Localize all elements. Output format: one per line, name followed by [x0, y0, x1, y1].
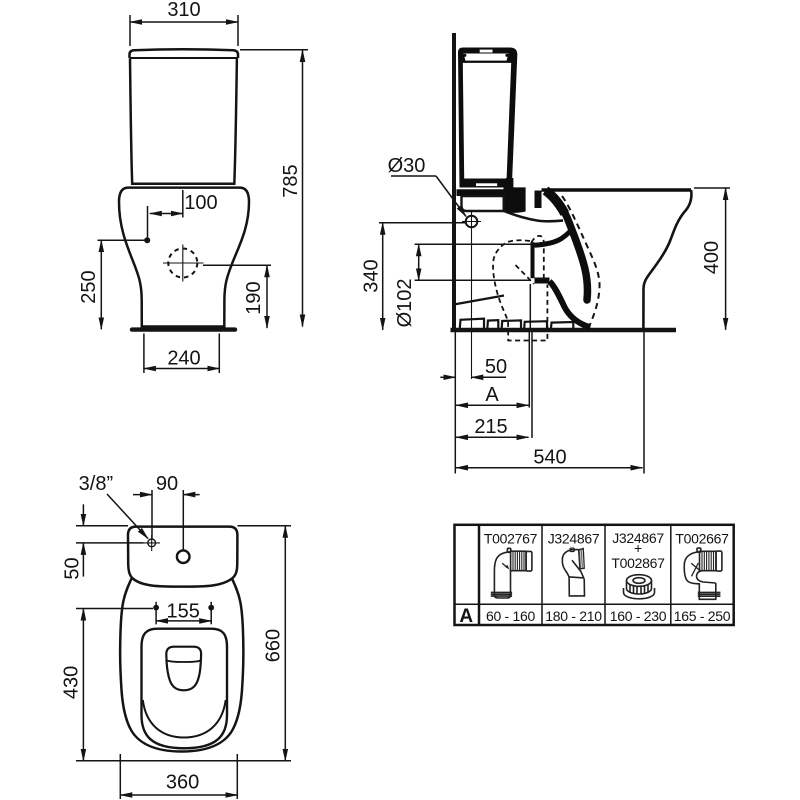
svg-text:50: 50	[485, 356, 507, 378]
svg-text:250: 250	[78, 270, 100, 303]
svg-text:660: 660	[263, 629, 285, 662]
svg-text:+: +	[634, 540, 642, 556]
svg-text:T002867: T002867	[611, 555, 665, 571]
svg-text:J324867: J324867	[548, 531, 600, 547]
svg-text:90: 90	[156, 473, 178, 495]
svg-text:310: 310	[167, 0, 200, 21]
svg-text:Ø30: Ø30	[388, 155, 426, 177]
svg-text:50: 50	[62, 557, 84, 579]
svg-text:430: 430	[60, 666, 82, 699]
svg-text:215: 215	[474, 416, 507, 438]
svg-text:165 - 250: 165 - 250	[674, 608, 731, 624]
svg-text:160 - 230: 160 - 230	[610, 608, 667, 624]
svg-text:360: 360	[166, 772, 199, 794]
svg-text:400: 400	[701, 241, 723, 274]
svg-text:240: 240	[167, 348, 200, 370]
svg-text:190: 190	[243, 281, 265, 314]
svg-text:540: 540	[533, 447, 566, 469]
svg-text:60 - 160: 60 - 160	[486, 608, 535, 624]
svg-text:785: 785	[280, 164, 302, 197]
svg-text:Ø102: Ø102	[394, 278, 416, 327]
svg-text:3/8”: 3/8”	[79, 473, 113, 495]
svg-text:A: A	[485, 384, 499, 406]
svg-text:180 - 210: 180 - 210	[545, 608, 602, 624]
svg-text:T002667: T002667	[675, 531, 729, 547]
svg-text:340: 340	[361, 259, 383, 292]
svg-text:100: 100	[184, 192, 217, 214]
svg-text:155: 155	[167, 601, 200, 623]
svg-text:T002767: T002767	[484, 531, 538, 547]
svg-text:A: A	[459, 606, 473, 627]
